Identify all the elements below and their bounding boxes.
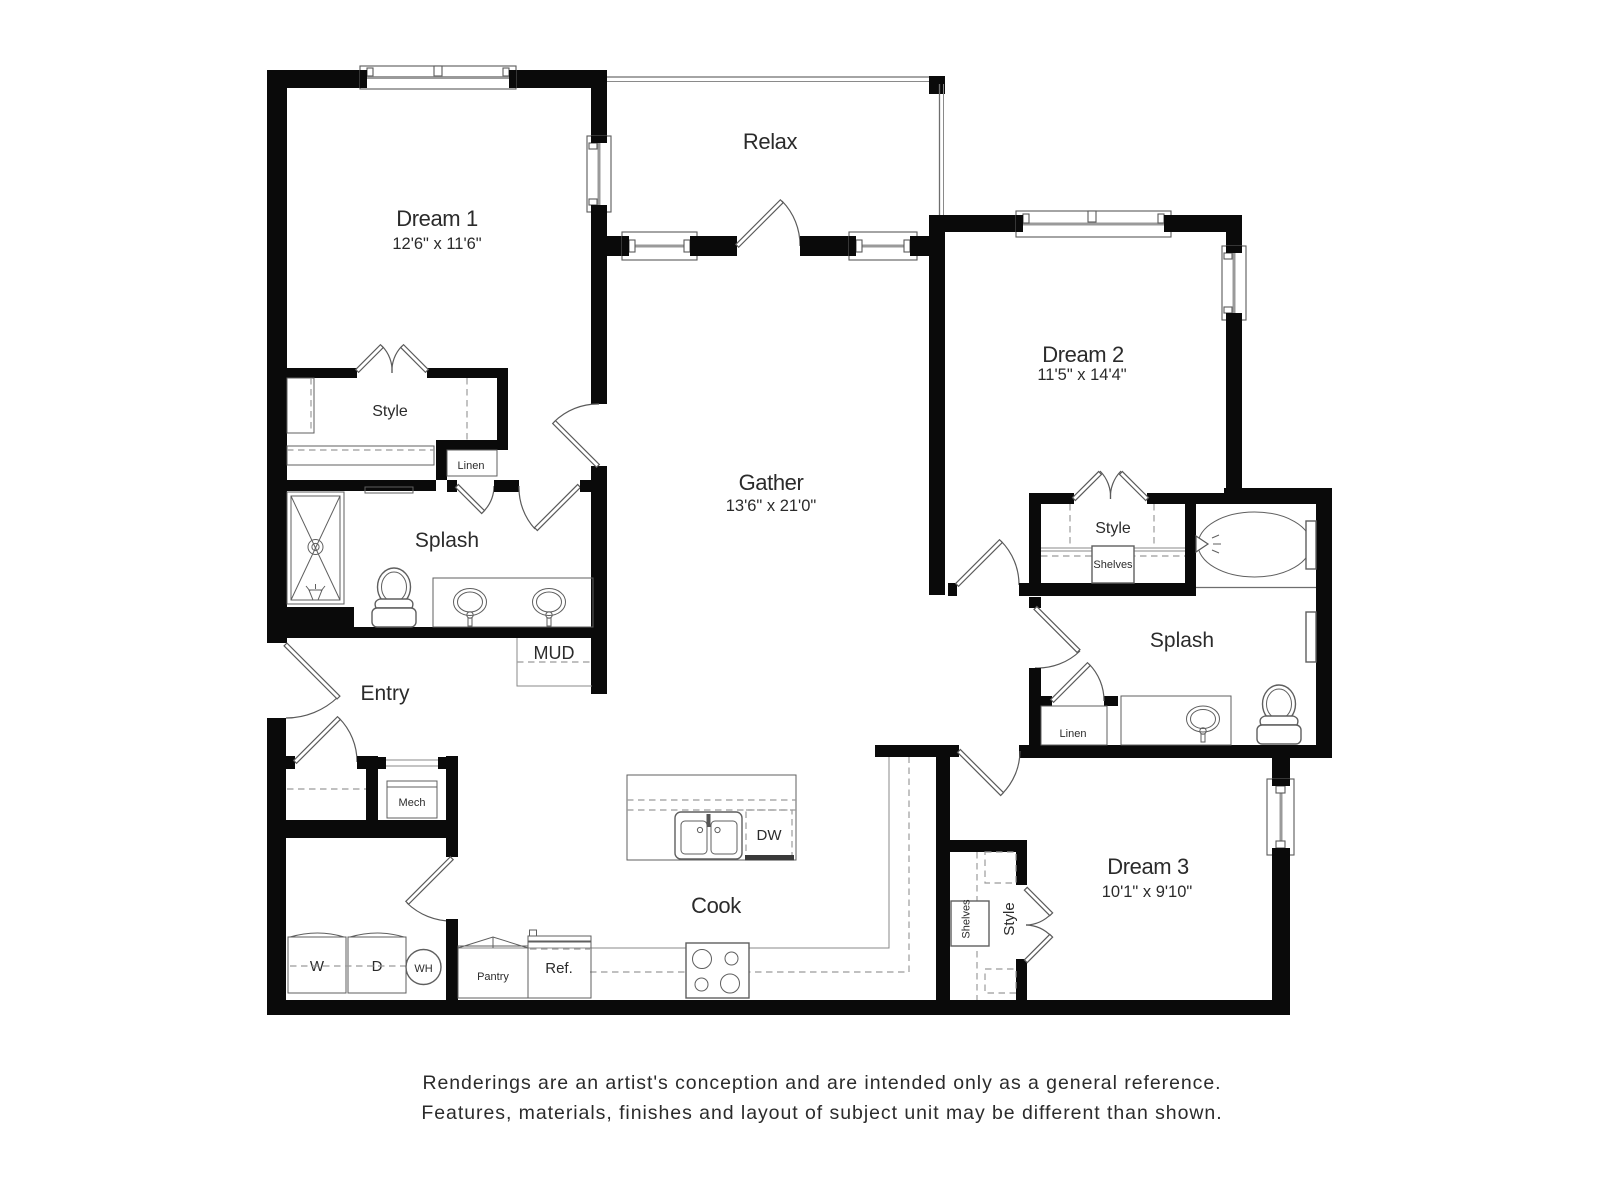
svg-text:Linen: Linen xyxy=(1060,728,1087,740)
svg-text:Style: Style xyxy=(1001,902,1018,935)
svg-text:Gather: Gather xyxy=(739,470,804,495)
svg-text:Dream 3: Dream 3 xyxy=(1107,854,1189,879)
svg-text:Entry: Entry xyxy=(360,682,410,705)
svg-text:Relax: Relax xyxy=(743,129,798,154)
svg-text:WH: WH xyxy=(414,963,432,975)
svg-text:Mech: Mech xyxy=(399,797,426,809)
svg-text:Splash: Splash xyxy=(415,529,479,552)
svg-text:10'1" x 9'10": 10'1" x 9'10" xyxy=(1102,883,1193,901)
svg-text:DW: DW xyxy=(757,827,783,844)
svg-text:Pantry: Pantry xyxy=(477,971,509,983)
svg-text:Renderings are an artist's con: Renderings are an artist's conception an… xyxy=(422,1072,1221,1094)
svg-text:Splash: Splash xyxy=(1150,629,1214,652)
svg-text:Shelves: Shelves xyxy=(1093,559,1133,571)
svg-text:12'6" x 11'6": 12'6" x 11'6" xyxy=(392,235,481,253)
svg-text:Linen: Linen xyxy=(458,460,485,472)
svg-text:13'6" x 21'0": 13'6" x 21'0" xyxy=(726,497,817,515)
svg-text:Ref.: Ref. xyxy=(545,960,573,977)
svg-text:MUD: MUD xyxy=(534,643,575,663)
svg-text:Cook: Cook xyxy=(691,893,742,918)
svg-text:11'5" x 14'4": 11'5" x 14'4" xyxy=(1037,366,1126,384)
svg-text:Style: Style xyxy=(1095,520,1131,537)
svg-text:Shelves: Shelves xyxy=(961,899,973,939)
svg-text:Features, materials, finishes: Features, materials, finishes and layout… xyxy=(421,1102,1222,1124)
svg-text:Dream 2: Dream 2 xyxy=(1042,342,1124,367)
svg-text:Dream 1: Dream 1 xyxy=(396,206,478,231)
svg-text:Style: Style xyxy=(372,403,408,420)
